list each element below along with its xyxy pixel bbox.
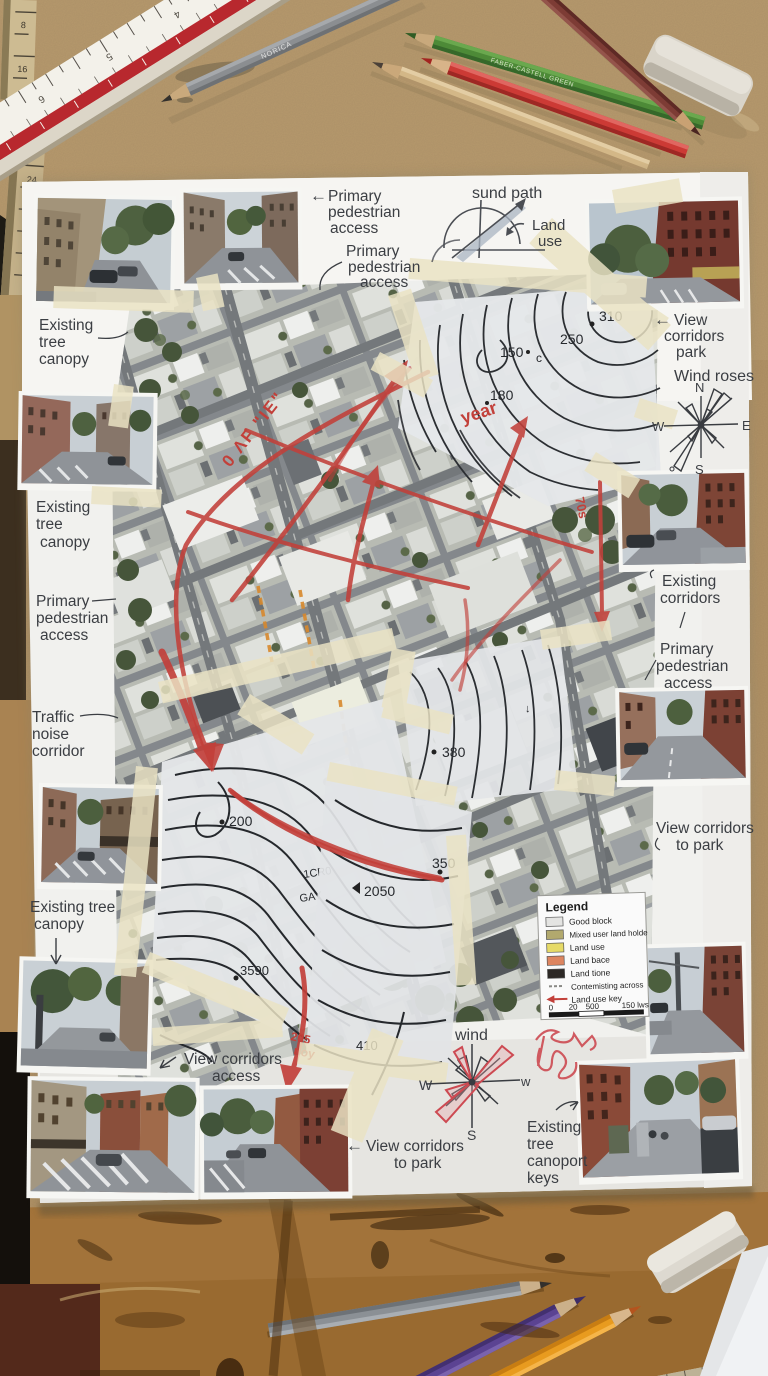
svg-text:500: 500: [586, 1002, 600, 1011]
svg-text:Existing: Existing: [36, 499, 90, 516]
svg-text:canopy: canopy: [39, 351, 89, 368]
svg-text:Good block: Good block: [569, 915, 613, 926]
svg-text:150: 150: [500, 344, 524, 360]
svg-text:250: 250: [560, 331, 584, 347]
svg-text:S: S: [695, 462, 704, 477]
svg-text:N: N: [695, 380, 704, 395]
svg-text:2050: 2050: [364, 883, 395, 899]
svg-text:Land use: Land use: [570, 942, 606, 953]
svg-text:canopy: canopy: [40, 534, 90, 551]
svg-text:W: W: [419, 1077, 433, 1093]
svg-text:Existing: Existing: [662, 573, 716, 590]
svg-text:access: access: [664, 675, 712, 692]
svg-text:Land bace: Land bace: [570, 954, 610, 965]
svg-text:E: E: [742, 418, 751, 433]
svg-text:noise: noise: [32, 726, 69, 743]
svg-text:Primary: Primary: [660, 641, 714, 658]
svg-text:View corridors: View corridors: [184, 1051, 282, 1068]
svg-text:16: 16: [17, 64, 27, 74]
svg-text:Existing: Existing: [527, 1119, 581, 1136]
svg-text:W: W: [652, 419, 665, 434]
svg-text:wind: wind: [454, 1027, 488, 1044]
svg-text:Land: Land: [532, 217, 565, 234]
svg-text:pedestrian: pedestrian: [656, 658, 728, 675]
svg-text:380: 380: [442, 744, 466, 760]
svg-text:access: access: [360, 274, 408, 291]
svg-text:keys: keys: [527, 1170, 559, 1187]
svg-text:w: w: [520, 1074, 531, 1089]
svg-text:park: park: [676, 344, 706, 361]
svg-text:corridors: corridors: [664, 328, 725, 345]
svg-text:access: access: [212, 1068, 260, 1085]
svg-text:View corridors: View corridors: [366, 1138, 464, 1155]
svg-text:tree: tree: [36, 516, 63, 533]
svg-text:tree: tree: [527, 1136, 554, 1153]
svg-text:Legend: Legend: [545, 899, 588, 914]
svg-text:Traffic: Traffic: [32, 709, 74, 726]
svg-text:200: 200: [229, 813, 253, 829]
svg-text:0: 0: [549, 1003, 554, 1012]
svg-text:Land tione: Land tione: [570, 967, 610, 978]
svg-text:←: ←: [310, 186, 327, 205]
svg-text:canopy: canopy: [34, 916, 84, 933]
svg-text:corridors: corridors: [660, 590, 721, 607]
svg-text:pedestrian: pedestrian: [36, 610, 108, 627]
svg-text:canoport: canoport: [527, 1153, 588, 1170]
svg-text:c: c: [536, 351, 542, 365]
svg-text:access: access: [40, 627, 88, 644]
svg-text:to park: to park: [394, 1155, 442, 1172]
svg-text:8: 8: [21, 20, 26, 30]
svg-text:View: View: [674, 312, 708, 329]
svg-text:View corridors: View corridors: [656, 820, 754, 837]
svg-text:3590: 3590: [240, 963, 269, 978]
svg-text:S: S: [467, 1127, 476, 1143]
svg-text:Existing tree: Existing tree: [30, 899, 115, 916]
svg-text:sund path: sund path: [472, 185, 542, 202]
svg-text:corridor: corridor: [32, 743, 85, 760]
svg-text:Wind roses: Wind roses: [674, 368, 754, 385]
svg-text:Primary: Primary: [328, 188, 382, 205]
svg-text:150 lws: 150 lws: [621, 1000, 648, 1010]
svg-text:access: access: [330, 220, 378, 237]
svg-text:pedestrian: pedestrian: [328, 204, 400, 221]
svg-text:20: 20: [569, 1002, 579, 1011]
svg-text:←: ←: [654, 310, 671, 329]
svg-text:Primary: Primary: [36, 593, 90, 610]
svg-text:to park: to park: [676, 837, 724, 854]
svg-text:Existing: Existing: [39, 317, 93, 334]
svg-text:←: ←: [346, 1136, 363, 1155]
svg-text:tree: tree: [39, 334, 66, 351]
svg-text:↓: ↓: [525, 703, 531, 715]
svg-text:use: use: [538, 233, 562, 250]
svg-text:Primary: Primary: [346, 243, 400, 260]
